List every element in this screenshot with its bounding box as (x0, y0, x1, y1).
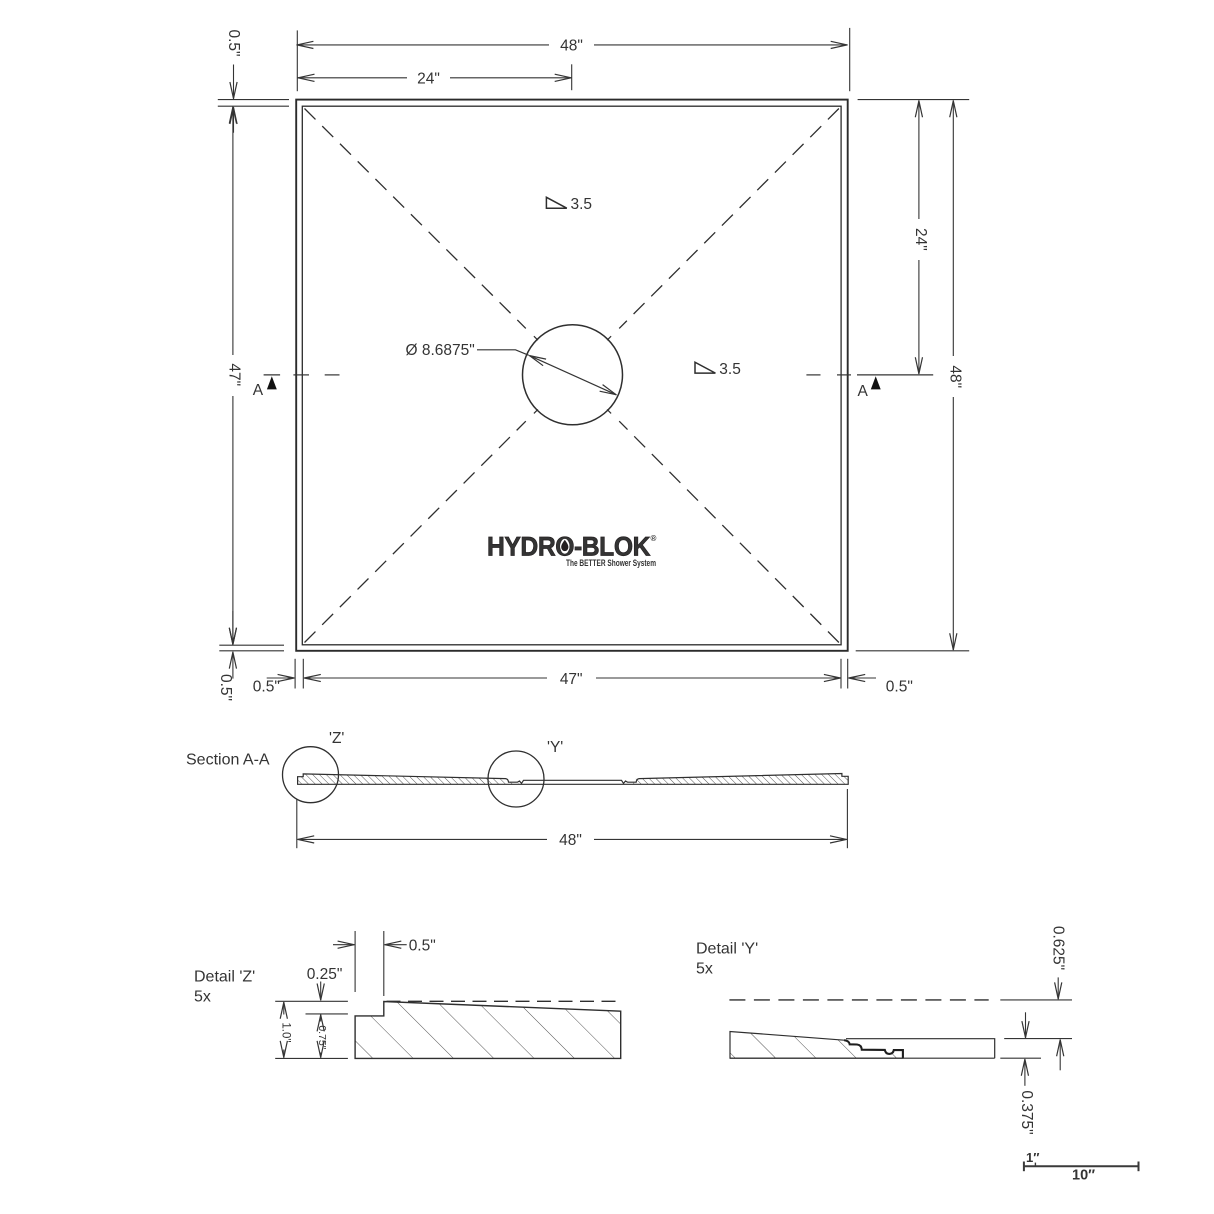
svg-text:0.25": 0.25" (307, 966, 343, 983)
svg-text:0.5": 0.5" (217, 674, 234, 701)
svg-text:0.5": 0.5" (225, 29, 242, 56)
svg-text:47": 47" (225, 363, 242, 386)
svg-text:Detail 'Z': Detail 'Z' (194, 969, 255, 986)
svg-text:A: A (253, 382, 264, 399)
svg-text:48": 48" (559, 832, 582, 849)
svg-text:10″: 10″ (1072, 1168, 1095, 1184)
svg-text:0.375": 0.375" (1018, 1090, 1035, 1134)
svg-text:®: ® (651, 534, 657, 543)
svg-text:3.5: 3.5 (719, 361, 741, 378)
svg-text:0.75": 0.75" (316, 1025, 328, 1049)
svg-text:0.5": 0.5" (409, 937, 436, 954)
svg-text:0.625": 0.625" (1049, 926, 1066, 970)
svg-text:Detail 'Y': Detail 'Y' (696, 941, 758, 958)
svg-text:1″: 1″ (1026, 1150, 1039, 1165)
svg-text:24": 24" (912, 228, 929, 251)
svg-text:'Z': 'Z' (329, 730, 344, 747)
svg-text:The BETTER Shower System: The BETTER Shower System (566, 558, 656, 568)
svg-text:1.0": 1.0" (279, 1022, 291, 1042)
svg-text:47": 47" (560, 671, 583, 688)
svg-text:3.5: 3.5 (571, 196, 593, 213)
svg-text:5x: 5x (696, 961, 713, 978)
svg-text:A: A (858, 383, 869, 400)
svg-text:48": 48" (946, 365, 963, 388)
svg-text:0.5": 0.5" (253, 679, 280, 696)
svg-text:Section A-A: Section A-A (186, 752, 270, 769)
svg-text:0.5": 0.5" (886, 679, 913, 696)
svg-text:Ø 8.6875": Ø 8.6875" (406, 342, 475, 359)
svg-text:5x: 5x (194, 989, 211, 1006)
svg-text:24": 24" (417, 71, 440, 88)
svg-text:48": 48" (560, 38, 583, 55)
svg-text:'Y': 'Y' (547, 739, 563, 756)
